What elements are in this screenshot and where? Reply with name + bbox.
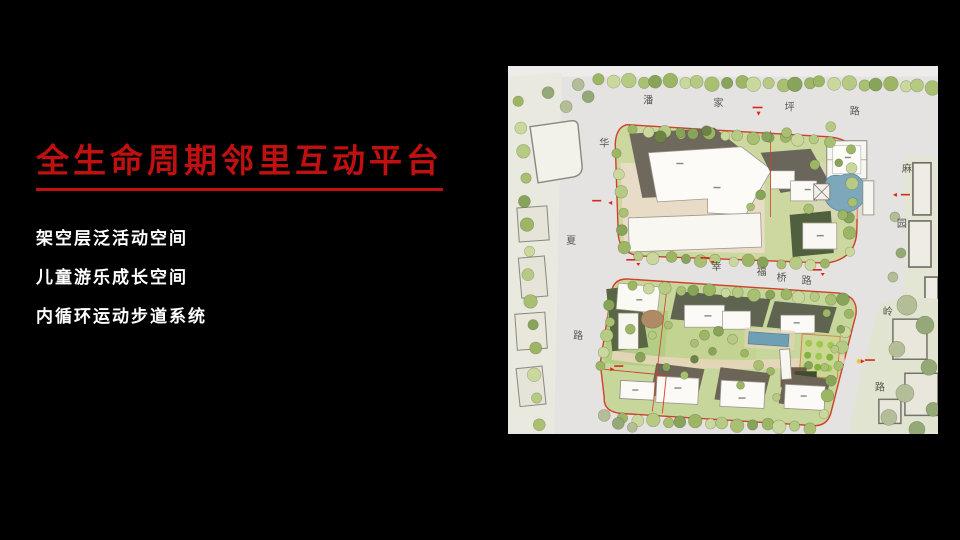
- road-label-char: 路: [850, 105, 860, 118]
- road-label-char: 华: [599, 137, 609, 150]
- road-label-char: 福: [757, 265, 767, 278]
- road-label-char: 路: [573, 329, 583, 342]
- north-parcel: [615, 125, 874, 263]
- bullet-item: 架空层泛活动空间: [36, 224, 207, 249]
- road-label-char: 桥: [777, 272, 787, 284]
- road-label-char: 路: [875, 380, 885, 393]
- road-label-char: 幸: [711, 261, 721, 273]
- road-label-char: 岭: [883, 305, 893, 318]
- play-area: [641, 310, 663, 328]
- road-label-char: 家: [713, 97, 723, 110]
- site-plan-svg: 潘 家 坪 路 华 夏 路 麻 园 岭 路 幸 福 桥 路: [508, 66, 938, 434]
- road-label-char: 潘: [643, 95, 653, 107]
- road-label-char: 麻: [902, 162, 912, 175]
- lap-pool: [748, 332, 789, 347]
- bullet-item: 儿童游乐成长空间: [36, 263, 207, 288]
- road-label-char: 园: [897, 218, 907, 230]
- pavilion: [814, 184, 830, 200]
- presentation-slide: 全生命周期邻里互动平台 架空层泛活动空间 儿童游乐成长空间 内循环运动步道系统: [0, 0, 960, 540]
- bullet-item: 内循环运动步道系统: [36, 302, 207, 327]
- pond: [824, 174, 866, 212]
- road-label-char: 路: [802, 274, 812, 287]
- road-label-char: 坪: [785, 101, 795, 114]
- bullet-list: 架空层泛活动空间 儿童游乐成长空间 内循环运动步道系统: [36, 224, 207, 341]
- road-label-char: 夏: [566, 235, 576, 247]
- page-title: 全生命周期邻里互动平台: [36, 134, 443, 191]
- site-plan-image: 潘 家 坪 路 华 夏 路 麻 园 岭 路 幸 福 桥 路: [508, 66, 938, 434]
